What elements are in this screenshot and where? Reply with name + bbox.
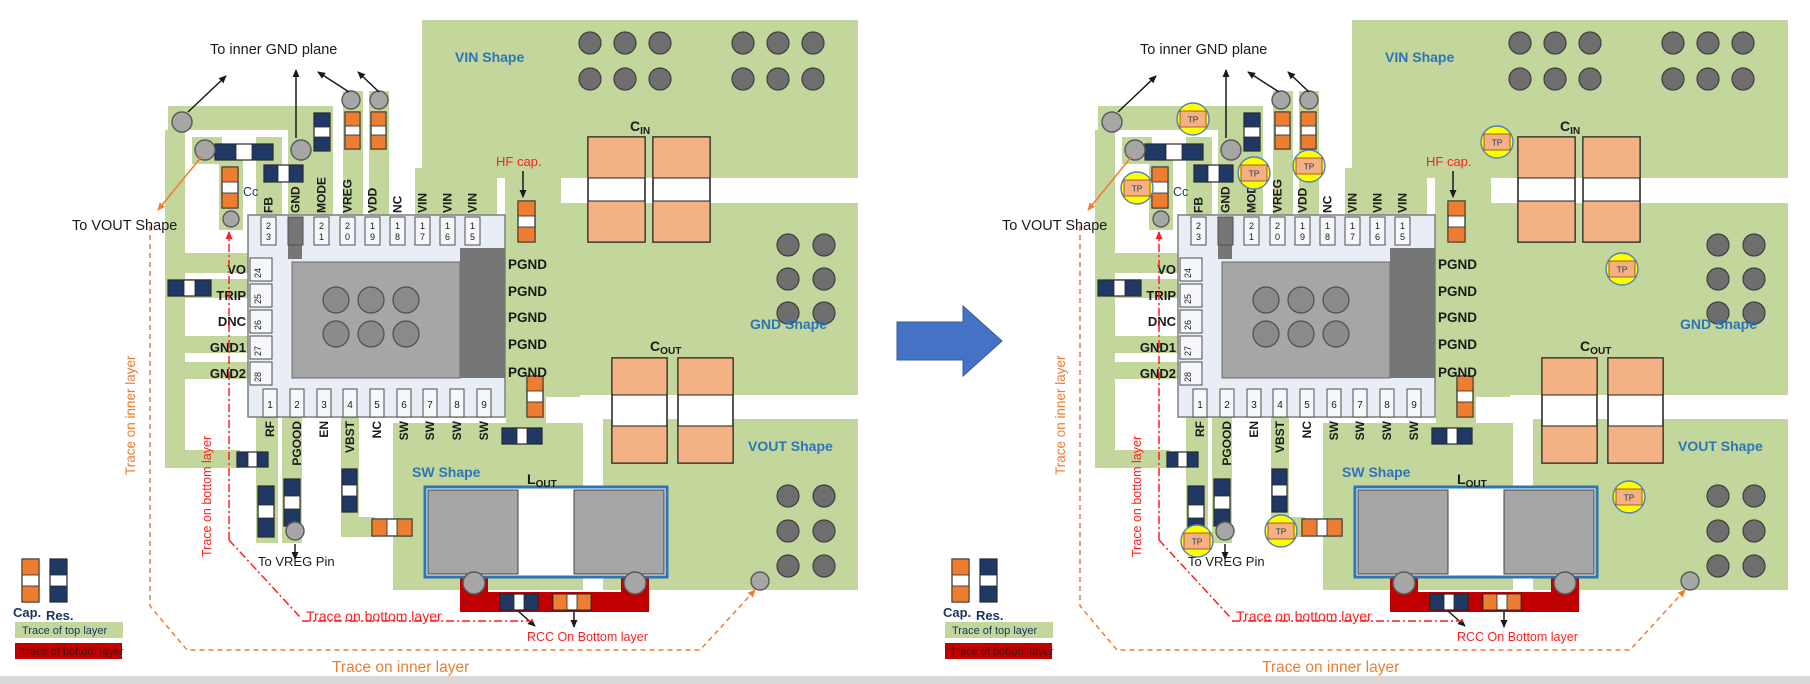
arrow-gnd-plane-3 [318,72,349,92]
res-trip-segment [195,280,211,296]
plane-via [813,234,835,256]
label-to-inner-gnd-plane: To inner GND plane [1140,42,1267,58]
pin-label-rf: RF [263,421,277,437]
cap-cin-1-pad [1518,201,1575,242]
pin-number: 26 [253,320,263,330]
inductor-lout-pad [574,490,664,574]
pin-number: 2 [345,221,350,231]
label-vout-shape: VOUT Shape [748,438,833,454]
legend-res-label: Res. [976,608,1003,623]
plane-via [1707,268,1729,290]
label-pgnd-3: PGND [1438,310,1477,325]
res-snubber-segment [1457,428,1472,444]
plane-via [1662,68,1684,90]
cap-cin-1-pad [1518,137,1575,178]
plane-via [1707,520,1729,542]
pin-number: 6 [401,400,407,411]
label-to-vreg-pin: To VREG Pin [258,554,335,569]
res-fb-divider-segment [252,144,273,160]
res-vbst-segment [1272,469,1287,485]
res-rf-segment [258,486,274,505]
trace-gnd-top-bar [168,106,333,130]
plane-via [1743,520,1765,542]
pin-label-vo: VO [227,262,246,277]
pin-number: 8 [395,232,400,242]
pin-label-vreg: VREG [1271,179,1285,213]
pin-label-nc: NC [370,421,384,439]
test-point-label: TP [1624,493,1635,503]
pin-number: 6 [1331,400,1337,411]
pin-number: 7 [1357,400,1363,411]
plane-via [802,32,824,54]
legend-cap-label: Cap. [13,605,41,620]
via-lout-left [1393,572,1415,594]
pin-box-top [288,217,303,245]
res-mode-segment [1244,137,1260,151]
ic-thermal-via [358,321,384,347]
arrow-gnd-plane-4 [358,72,379,92]
inductor-lout-pad [1358,490,1448,574]
test-point: TP [1606,253,1638,285]
pin-label-vbst: VBST [343,420,357,453]
res-fb-divider-segment [215,144,236,160]
legend-top-layer-label: Trace of top layer [22,625,108,637]
pin-label-gnd: GND [289,186,303,213]
pin-label-mode: MODE [315,177,329,213]
test-point: TP [1265,515,1297,547]
pin-number: 0 [345,232,350,242]
cap-rcc-segment [1483,594,1497,610]
label-pgnd-1: PGND [1438,257,1477,272]
pin-number: 1 [370,221,375,231]
pin-label-gnd1: GND1 [1140,340,1176,355]
cap-vdd-segment [1301,135,1316,149]
res-rf-segment [258,518,274,537]
pin-label-vin: VIN [416,193,430,213]
arrow-rcc-res [518,611,535,626]
plane-via [1579,32,1601,54]
label-to-vout-shape: To VOUT Shape [72,218,177,234]
label-sw-shape: SW Shape [412,464,481,480]
plane-via [767,32,789,54]
pin-label-gnd1: GND1 [210,340,246,355]
pin-number: 3 [266,232,271,242]
plane-via [579,68,601,90]
label-trace-bottom-layer-vertical: Trace on bottom layer [200,436,214,557]
label-trace-inner-layer-vertical: Trace on inner layer [1053,355,1068,475]
pin-number: 27 [1183,346,1193,356]
plane-via [579,32,601,54]
pin-label-sw: SW [1407,420,1421,440]
pin-number: 2 [1196,221,1201,231]
pin-number: 9 [370,232,375,242]
pin-number: 8 [1384,400,1390,411]
pin-number: 7 [427,400,433,411]
legend-cap-symbol-segment [952,559,969,575]
res-fb-gnd-segment [1194,165,1208,182]
label-pgnd-4: PGND [508,337,547,352]
pin-label-sw: SW [423,420,437,440]
arrow-gnd-plane-4 [1288,72,1309,92]
label-hf-cap: HF cap. [496,154,542,169]
res-fb-gnd-segment [264,165,278,182]
pin-label-fb: FB [262,197,276,213]
via-lout-right [624,572,646,594]
pin-number: 2 [1275,221,1280,231]
ic-thermal-via [393,287,419,313]
pin-number: 28 [253,372,263,382]
pin-label-fb: FB [1192,197,1206,213]
test-point: TP [1177,103,1209,135]
legend-bottom-layer-label: Trace of bottom layer [950,646,1054,658]
label-gnd-shape: GND Shape [750,316,827,332]
res-rf-segment [1188,486,1204,505]
legend-cap-symbol-segment [22,559,39,575]
ic-pad-extension [1390,248,1435,378]
cap-vdd-segment [371,112,386,126]
via-to-vreg-pin [1216,522,1234,540]
plane-via [777,520,799,542]
pin-label-trip: TRIP [1146,288,1176,303]
plane-via [1707,234,1729,256]
cap-cin-2-pad [1583,201,1640,242]
label-trace-bottom-layer: Trace on bottom layer [1236,608,1372,624]
plane-via [802,68,824,90]
plane-via [1707,485,1729,507]
res-rcc-segment [1430,594,1444,610]
via-vdd [370,91,388,109]
via-lout-left [463,572,485,594]
ic-thermal-via [1323,287,1349,313]
legend-res-symbol-segment [980,586,997,602]
trace-vbst-bend [341,517,375,537]
cap-hf-segment [1448,227,1465,242]
via-gnd-pin [1221,140,1241,160]
pin-number: 4 [347,400,353,411]
pin-number: 5 [1304,400,1310,411]
pin-number: 25 [253,294,263,304]
plane-via [649,32,671,54]
pin-label-vin: VIN [1371,193,1385,213]
cap-vbst-segment [372,519,387,536]
pin-number: 1 [1197,400,1203,411]
test-point-label: TP [1192,537,1203,547]
plane-via [1732,32,1754,54]
plane-via [813,268,835,290]
pin-number: 8 [1325,232,1330,242]
res-rail-rf-segment [1167,452,1178,467]
pin-number: 26 [1183,320,1193,330]
pin-label-vin: VIN [466,193,480,213]
plane-via [1544,68,1566,90]
pin-label-vin: VIN [1396,193,1410,213]
test-point-label: TP [1304,162,1315,172]
via-vout-inner [751,572,769,590]
res-rail-rf-segment [1187,452,1198,467]
plane-via [1544,32,1566,54]
cap-vdd-segment [371,135,386,149]
plane-via [777,268,799,290]
pin-number: 5 [470,232,475,242]
res-fb-gnd-segment [289,165,303,182]
pin-label-vdd: VDD [1296,187,1310,213]
plane-via [813,485,835,507]
plane-via [1743,555,1765,577]
legend-res-symbol-segment [50,559,67,575]
cap-hf-segment [518,201,535,216]
pin-number: 1 [445,221,450,231]
plane-via [777,555,799,577]
test-point: TP [1181,525,1213,557]
label-trace-inner-layer: Trace on inner layer [1262,659,1399,676]
pin-label-gnd2: GND2 [210,366,246,381]
ic-thermal-via [1323,321,1349,347]
pin-number: 4 [1277,400,1283,411]
cap-cout-1-pad [612,426,667,463]
inductor-lout-pad [1504,490,1594,574]
legend-cap-symbol-segment [952,586,969,602]
pin-label-sw: SW [477,420,491,440]
label-to-inner-gnd-plane: To inner GND plane [210,42,337,58]
pin-label-nc: NC [391,195,405,213]
cap-cc-segment [222,193,238,208]
pin-label-gnd2: GND2 [1140,366,1176,381]
pin-number: 27 [253,346,263,356]
test-point-label: TP [1617,265,1628,275]
res-trip-segment [1125,280,1141,296]
label-to-vout-shape: To VOUT Shape [1002,218,1107,234]
pcb-board-after: 23FBGND21MODE20VREG19VDD18NC17VIN16VIN15… [930,0,1810,680]
label-pgnd-2: PGND [1438,284,1477,299]
res-mode-segment [314,113,330,127]
pin-number: 1 [1300,221,1305,231]
cap-cc-segment [1152,193,1168,208]
plane-via [732,68,754,90]
cap-cout-2-pad [1608,426,1663,463]
pin-number: 5 [374,400,380,411]
res-mode-segment [314,137,330,151]
inductor-lout-pad [428,490,518,574]
test-point-label: TP [1492,138,1503,148]
pin-box-top [1218,217,1233,245]
pin-label-vo: VO [1157,262,1176,277]
res-fb-divider-segment [1145,144,1166,160]
pin-number: 24 [253,268,263,278]
res-rail-rf-segment [257,452,268,467]
plane-via [614,32,636,54]
pin-label-sw: SW [1380,420,1394,440]
res-snubber-segment [527,428,542,444]
res-mode-segment [1244,113,1260,127]
test-point: TP [1121,172,1153,204]
label-rcc-bottom: RCC On Bottom layer [527,630,648,644]
label-sw-shape: SW Shape [1342,464,1411,480]
pin-label-pgood: PGOOD [290,421,304,466]
cap-cin-2-pad [653,137,710,178]
cap-cc-segment [222,167,238,182]
legend-res-symbol-segment [980,559,997,575]
cap-rcc-segment [1507,594,1521,610]
plane-via [1579,68,1601,90]
pin-number: 28 [1183,372,1193,382]
res-snubber-segment [502,428,517,444]
cap-vreg-segment [345,135,360,149]
cap-vbst-segment [1302,519,1317,536]
pin-number: 2 [1249,221,1254,231]
pin-number: 9 [1411,400,1417,411]
pin-number: 1 [1249,232,1254,242]
test-point-label: TP [1276,527,1287,537]
cap-cout-2-pad [678,426,733,463]
pin-label-sw: SW [1353,420,1367,440]
cap-cc-segment [1152,167,1168,182]
cap-vreg-segment [345,112,360,126]
cap-vreg-segment [1275,112,1290,126]
plane-via [732,32,754,54]
cap-rcc-segment [553,594,567,610]
legend-res-symbol-segment [50,586,67,602]
pin-number: 1 [395,221,400,231]
ic-thermal-via [358,287,384,313]
plane-via [1743,234,1765,256]
res-rcc-segment [1454,594,1468,610]
legend-cap-symbol-segment [22,586,39,602]
res-vbst-segment [342,469,357,485]
res-pgood-segment [1214,479,1230,496]
pin-number: 2 [1224,400,1230,411]
via-vdd [1300,91,1318,109]
label-hf-cap: HF cap. [1426,154,1472,169]
pin-label-en: EN [317,421,331,438]
label-pgnd-3: PGND [508,310,547,325]
test-point: TP [1481,126,1513,158]
res-fb-divider-segment [1182,144,1203,160]
label-trace-bottom-layer: Trace on bottom layer [306,608,442,624]
legend-cap-label: Cap. [943,605,971,620]
pin-number: 9 [1300,232,1305,242]
pin-number: 1 [1375,221,1380,231]
plane-via [1707,555,1729,577]
cap-hf-segment [518,227,535,242]
pin-label-pgood: PGOOD [1220,421,1234,466]
pin-number: 1 [1400,221,1405,231]
pin-number: 3 [1251,400,1257,411]
via-gnd-plane-1 [1102,112,1122,132]
pin-number: 6 [445,232,450,242]
res-snubber-segment [1432,428,1447,444]
res-trip-segment [1098,280,1114,296]
pin-number: 24 [1183,268,1193,278]
label-cc: Cc [1173,185,1188,199]
test-point: TP [1293,150,1325,182]
via-lout-right [1554,572,1576,594]
res-pgood-segment [284,479,300,496]
ic-thermal-via [1253,321,1279,347]
plane-via [1509,68,1531,90]
pin-number: 7 [1350,232,1355,242]
pin-number: 1 [420,221,425,231]
cap-cin-1-pad [588,201,645,242]
plane-via [614,68,636,90]
cap-cout-1-pad [1542,358,1597,395]
pin-number: 1 [267,400,273,411]
pin-label-en: EN [1247,421,1261,438]
pin-label-vreg: VREG [341,179,355,213]
test-point: TP [1613,481,1645,513]
plane-via [767,68,789,90]
pin-label-vdd: VDD [366,187,380,213]
test-point: TP [1238,157,1270,189]
pin-number: 1 [470,221,475,231]
pin-label-dnc: DNC [1148,314,1177,329]
pcb-layout-before: 23FBGND21MODE20VREG19VDD18NC17VIN16VIN15… [0,0,880,680]
pin-number: 1 [319,232,324,242]
cap-cout-2-pad [1608,358,1663,395]
plane-via [1732,68,1754,90]
ic-thermal-via [1288,287,1314,313]
legend-res-label: Res. [46,608,73,623]
ic-thermal-pad [292,262,460,378]
pin-number: 1 [1325,221,1330,231]
via-vout-inner [1681,572,1699,590]
pin-number: 9 [481,400,487,411]
cap-vbst-segment [1327,519,1342,536]
cap-cin-1-pad [588,137,645,178]
test-point-label: TP [1132,184,1143,194]
pin-label-nc: NC [1321,195,1335,213]
label-rcc-bottom: RCC On Bottom layer [1457,630,1578,644]
legend-top-layer-label: Trace of top layer [952,625,1038,637]
ic-thermal-via [1288,321,1314,347]
via-to-vout [1125,140,1145,160]
res-rcc-segment [500,594,514,610]
cap-vreg-segment [1275,135,1290,149]
plane-via [1697,68,1719,90]
pin-number: 2 [266,221,271,231]
cap-pgnd-segment [527,402,543,417]
pin-number: 25 [1183,294,1193,304]
ic-thermal-via [1253,287,1279,313]
pin-label-trip: TRIP [216,288,246,303]
res-trip-segment [168,280,184,296]
via-gnd-plane-1 [172,112,192,132]
label-pgnd-5: PGND [1438,365,1477,380]
pin-number: 5 [1400,232,1405,242]
plane-via [1697,32,1719,54]
pin-number: 0 [1275,232,1280,242]
label-vin-shape: VIN Shape [1385,49,1454,65]
label-trace-bottom-layer-vertical: Trace on bottom layer [1130,436,1144,557]
pin-label-dnc: DNC [218,314,247,329]
pin-number: 7 [420,232,425,242]
res-vbst-segment [342,496,357,512]
label-cc: Cc [243,185,258,199]
label-gnd-shape: GND Shape [1680,316,1757,332]
plane-via [777,485,799,507]
pin-label-vin: VIN [441,193,455,213]
cap-cin-2-pad [653,201,710,242]
label-vin-shape: VIN Shape [455,49,524,65]
cap-vbst-segment [397,519,412,536]
label-pgnd-2: PGND [508,284,547,299]
pin-number: 1 [1350,221,1355,231]
test-point-label: TP [1188,115,1199,125]
cap-cout-1-pad [1542,426,1597,463]
plane-via [1743,485,1765,507]
pin-number: 8 [454,400,460,411]
via-to-vout [195,140,215,160]
pin-number: 6 [1375,232,1380,242]
